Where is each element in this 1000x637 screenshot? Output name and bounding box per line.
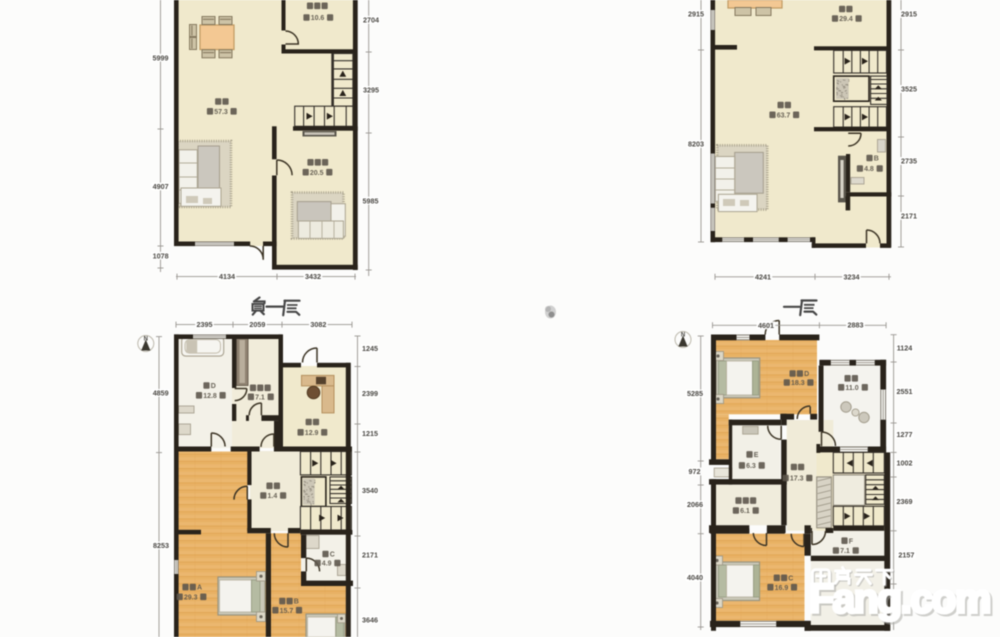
svg-text:11.0: 11.0 [845, 385, 858, 392]
svg-text:4040: 4040 [687, 573, 703, 582]
svg-text:5985: 5985 [363, 196, 379, 205]
svg-text:5999: 5999 [153, 53, 169, 62]
svg-text:2171: 2171 [901, 212, 917, 221]
svg-text:3646: 3646 [362, 616, 378, 625]
svg-text:B: B [294, 599, 299, 606]
svg-text:2735: 2735 [901, 157, 917, 166]
svg-text:4.9: 4.9 [322, 561, 332, 568]
svg-text:4134: 4134 [219, 272, 235, 281]
svg-text:12.9: 12.9 [305, 430, 319, 437]
svg-text:1002: 1002 [897, 459, 913, 468]
svg-text:7.1: 7.1 [840, 548, 850, 555]
svg-text:4.8: 4.8 [864, 166, 874, 173]
svg-text:3540: 3540 [362, 486, 378, 495]
svg-text:3234: 3234 [844, 272, 860, 281]
svg-text:4601: 4601 [758, 321, 774, 330]
svg-text:18.3: 18.3 [791, 380, 805, 387]
svg-text:1.4: 1.4 [268, 493, 278, 500]
svg-text:2171: 2171 [362, 550, 378, 559]
svg-text:2551: 2551 [897, 387, 913, 396]
svg-text:4241: 4241 [755, 272, 771, 281]
svg-text:Fang.com: Fang.com [809, 576, 990, 622]
svg-text:972: 972 [689, 467, 701, 476]
svg-text:29.3: 29.3 [184, 594, 198, 601]
svg-text:2059: 2059 [249, 320, 265, 329]
svg-text:8203: 8203 [688, 140, 704, 149]
svg-text:15.7: 15.7 [280, 608, 294, 615]
svg-text:2399: 2399 [362, 389, 378, 398]
svg-text:10.6: 10.6 [311, 15, 325, 22]
svg-text:2883: 2883 [848, 320, 864, 329]
svg-text:B: B [874, 156, 879, 163]
svg-text:2369: 2369 [897, 497, 913, 506]
svg-text:E: E [754, 452, 759, 459]
svg-text:3432: 3432 [305, 272, 321, 281]
svg-text:1078: 1078 [153, 251, 169, 260]
svg-text:2157: 2157 [898, 550, 914, 559]
svg-text:3525: 3525 [901, 85, 917, 94]
svg-text:6.3: 6.3 [746, 463, 756, 470]
svg-text:3082: 3082 [310, 320, 326, 329]
svg-text:2066: 2066 [687, 500, 703, 509]
svg-text:4907: 4907 [153, 182, 169, 191]
svg-text:2704: 2704 [363, 15, 379, 24]
svg-text:3295: 3295 [363, 86, 379, 95]
svg-text:1245: 1245 [362, 344, 378, 353]
svg-text:5285: 5285 [687, 389, 703, 398]
svg-text:6.1: 6.1 [740, 508, 750, 515]
svg-text:1215: 1215 [362, 429, 378, 438]
svg-text:D: D [804, 371, 809, 378]
svg-text:1124: 1124 [897, 344, 913, 353]
svg-text:1277: 1277 [897, 430, 913, 439]
svg-text:2915: 2915 [688, 10, 704, 19]
svg-text:F: F [849, 538, 854, 545]
svg-text:2915: 2915 [901, 10, 917, 19]
svg-text:16.9: 16.9 [775, 585, 789, 592]
svg-text:57.3: 57.3 [214, 109, 228, 116]
svg-text:A: A [197, 585, 202, 592]
svg-text:12.8: 12.8 [203, 393, 217, 400]
svg-text:C: C [330, 552, 335, 559]
svg-text:2395: 2395 [197, 320, 213, 329]
svg-text:63.7: 63.7 [777, 112, 791, 119]
svg-text:C: C [788, 575, 793, 582]
svg-text:17.3: 17.3 [790, 476, 804, 483]
svg-text:7.1: 7.1 [255, 394, 265, 401]
svg-text:4859: 4859 [153, 389, 169, 398]
svg-text:8253: 8253 [153, 541, 169, 550]
svg-text:D: D [211, 383, 216, 390]
svg-text:20.5: 20.5 [310, 170, 324, 177]
svg-text:29.4: 29.4 [839, 16, 853, 23]
